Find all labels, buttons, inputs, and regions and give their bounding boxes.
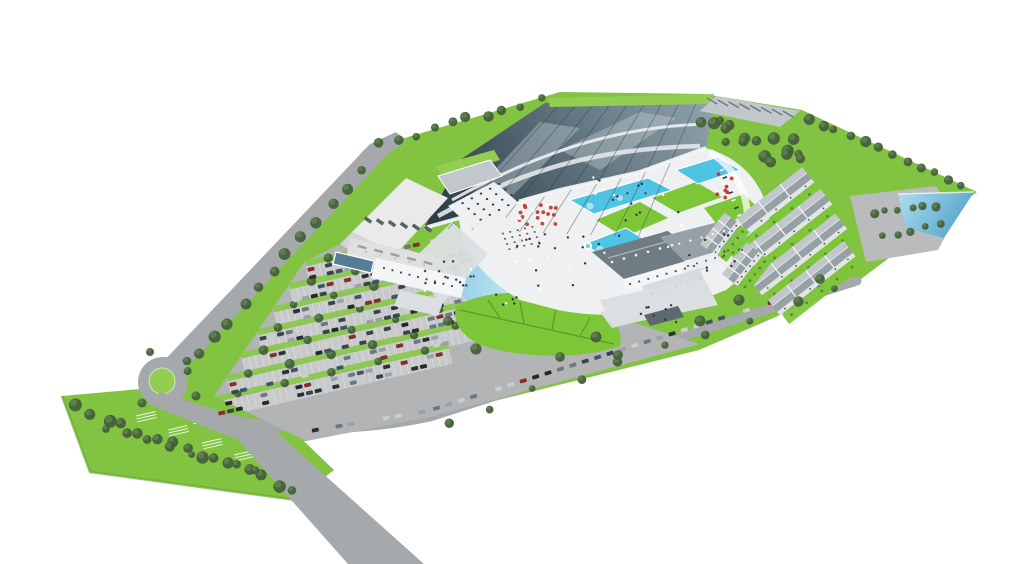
rendering-stage [0, 0, 1024, 564]
east-tip [850, 186, 974, 262]
resort-masterplan-aerial-rendering [0, 0, 1024, 564]
roundabout-island [149, 368, 175, 394]
